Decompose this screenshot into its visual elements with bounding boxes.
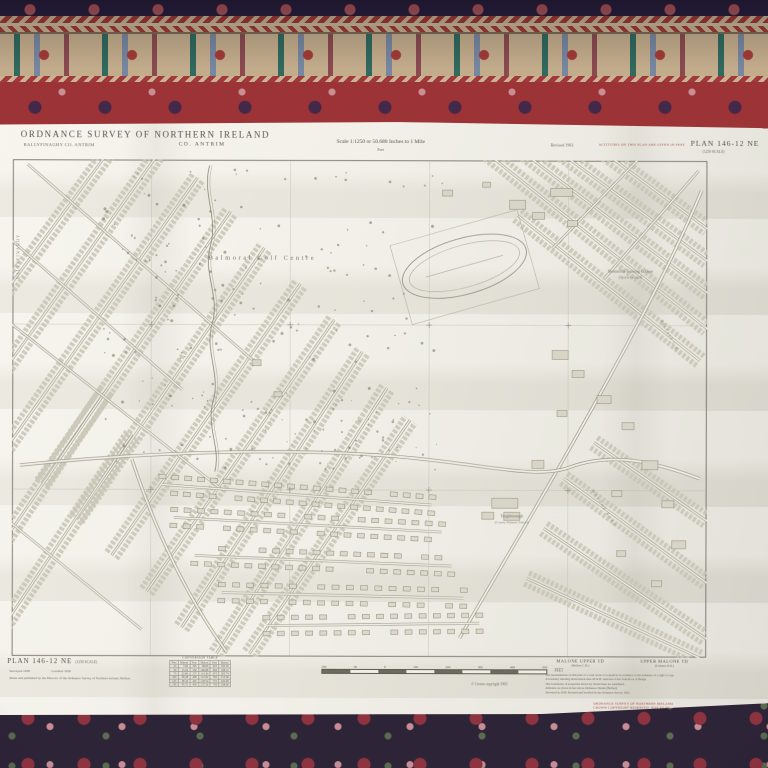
college-label-line2: (Sports Ground)	[619, 276, 643, 280]
conversion-table: CONVERSION TABLE FeetMetresFeetMetresFee…	[169, 656, 230, 687]
levelled-date: Levelled 1956	[51, 669, 71, 673]
school-label-line2: (County Primary School)	[495, 520, 529, 524]
scale-statement: Scale 1:1250 or 50.688 Inches to 1 Mile	[301, 139, 461, 145]
golf-course-label: Balmoral Golf Centre	[209, 255, 317, 262]
publication-note: Made and published by the Director of th…	[9, 676, 159, 681]
map-frame: Balmoral Golf Centre Stranmillis Trainin…	[11, 159, 707, 658]
carpet-sawtooth-band	[0, 16, 768, 23]
carpet-red-field	[0, 82, 768, 128]
college-label-line1: Stranmillis Training College	[608, 269, 654, 274]
townland-right: UPPER MALONE TD (Lisburn R.D.)	[625, 659, 703, 668]
county-label: CO. ANTRIM	[179, 141, 226, 147]
townland-right-sub: (Lisburn R.D.)	[625, 664, 703, 668]
running-track	[390, 210, 539, 325]
plan-number-top: PLAN 146-12 NE	[691, 139, 760, 148]
townland-left-sub: (Belfast C.B.)	[541, 663, 619, 667]
revision-date: Revised 1961	[551, 142, 574, 147]
ordnance-survey-map-sheet: ORDNANCE SURVEY OF NORTHERN IRELAND BALL…	[0, 121, 768, 717]
parish-note: BALLYFINAGHY CO. ANTRIM	[24, 142, 95, 147]
scale-sub-label: Feet	[301, 148, 461, 152]
scale-bar-unit: FEET	[555, 668, 564, 672]
carpet-beige-motif-band	[0, 32, 768, 78]
plan-scale-note-top: (1250 SCALE)	[703, 150, 725, 154]
altitude-note: ALTITUDES ON THIS PLAN ARE GIVEN IN FEET	[599, 143, 685, 147]
school-label-line1: Taughmonagh	[500, 513, 523, 518]
surveyed-date: Surveyed 1938	[9, 669, 29, 673]
crown-copyright: © Crown copyright 1963	[419, 682, 559, 686]
sheet-title: ORDNANCE SURVEY OF NORTHERN IRELAND	[21, 129, 270, 140]
map-drawing: Balmoral Golf Centre Stranmillis Trainin…	[11, 159, 707, 658]
townland-left: MALONE UPPER TD (Belfast C.B.)	[541, 658, 619, 667]
map-neatline	[12, 160, 707, 657]
photo-of-map-on-carpet: ORDNANCE SURVEY OF NORTHERN IRELAND BALL…	[0, 0, 768, 768]
plan-scale-note-bottom: (1250 SCALE)	[75, 660, 97, 664]
plan-number-bottom: PLAN 146-12 NE	[7, 657, 72, 665]
scale-bar: 100500100200300400500 FEET	[321, 665, 547, 674]
left-edge-townland-label: BALLYFINAGHY	[15, 234, 20, 279]
carpet-navy-border-band	[0, 0, 768, 16]
scale-bar-rule	[321, 669, 547, 674]
marginal-notes: The representation on this plan of a roa…	[545, 673, 683, 695]
